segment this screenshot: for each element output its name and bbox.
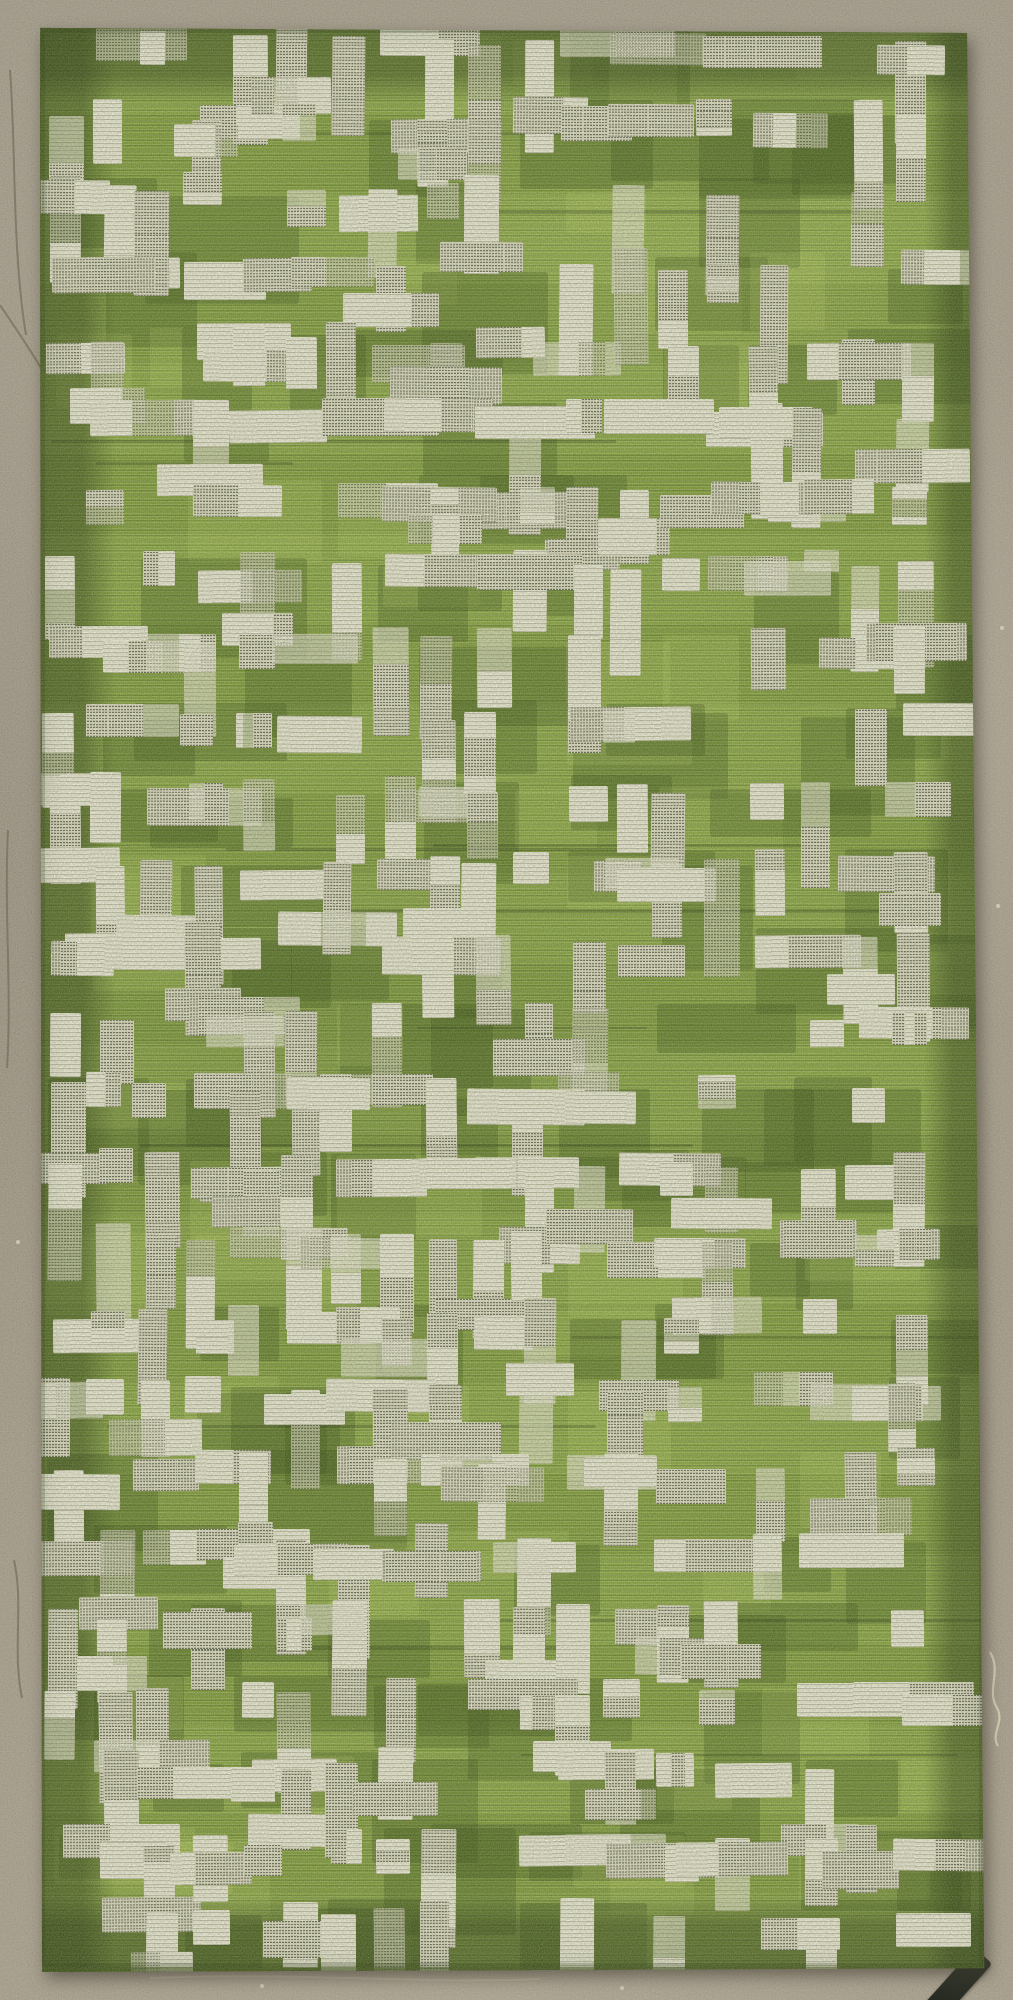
pebble — [996, 904, 1000, 908]
photo-scene — [0, 0, 1013, 2000]
fabric-grain — [36, 24, 988, 1972]
pebble — [16, 1240, 20, 1244]
pebble — [260, 1984, 264, 1988]
pebble — [620, 1986, 624, 1990]
fabric-light-fleck — [36, 24, 988, 1972]
pebble — [1000, 626, 1004, 630]
textile-wrap — [36, 24, 988, 1972]
green-textile — [36, 24, 988, 1972]
